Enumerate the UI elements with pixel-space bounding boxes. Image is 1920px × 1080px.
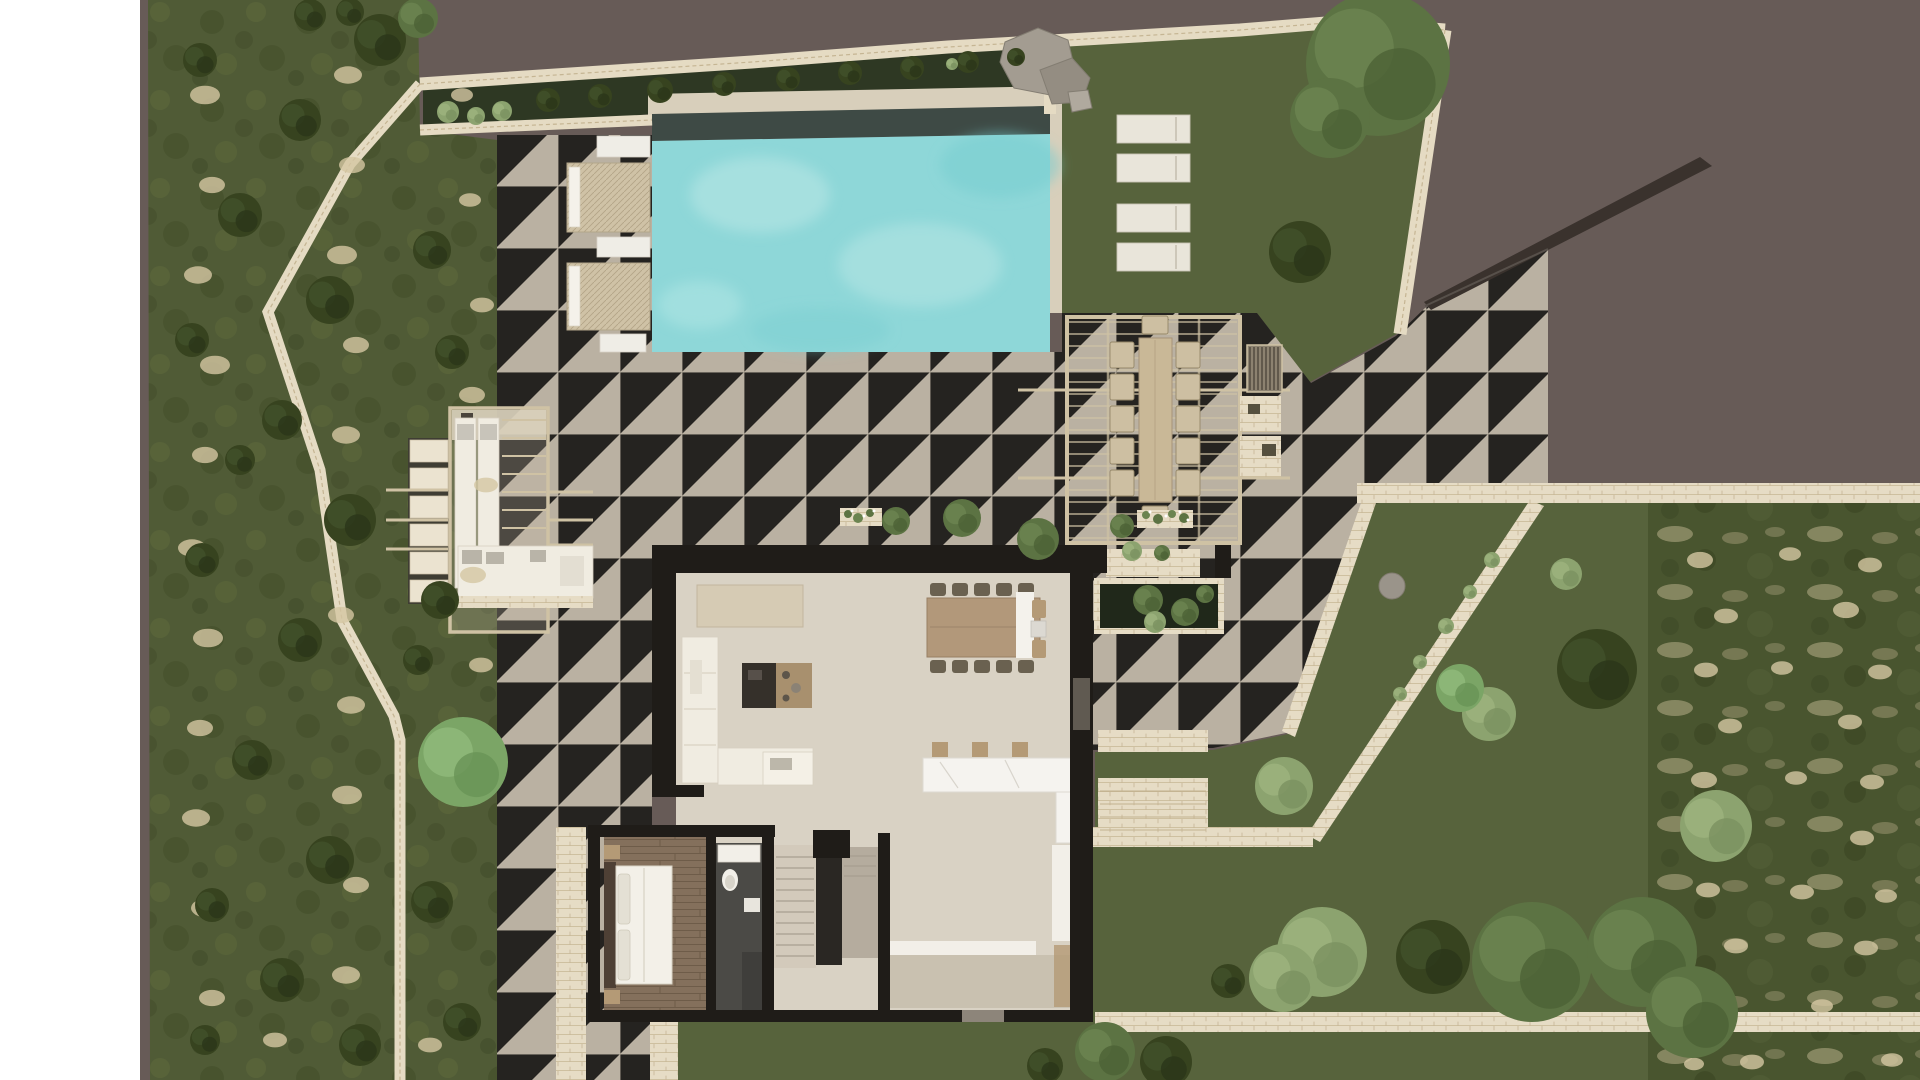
tree-canopy xyxy=(910,65,922,77)
tree-canopy xyxy=(893,518,907,532)
tree-canopy xyxy=(449,348,466,365)
sand-patch xyxy=(1875,889,1897,903)
dark-tree xyxy=(262,400,302,440)
sand-patch xyxy=(1691,772,1717,788)
mid-tree xyxy=(1110,514,1134,538)
tree-canopy xyxy=(296,635,318,657)
bar-stool xyxy=(932,742,948,757)
pergola-planter xyxy=(1137,510,1193,528)
sage-tree xyxy=(1122,541,1142,561)
dark-tree xyxy=(647,77,673,103)
tree-canopy xyxy=(1294,245,1325,276)
tree-canopy xyxy=(428,246,447,265)
sand-patch xyxy=(184,266,212,283)
tree-canopy xyxy=(296,115,317,136)
tree-canopy xyxy=(500,109,510,119)
sand-patch xyxy=(1785,771,1807,785)
mid-tree xyxy=(1133,585,1163,615)
dark-tree xyxy=(776,67,800,91)
tree-canopy xyxy=(1034,534,1055,555)
sun-mat xyxy=(597,237,650,257)
tree-canopy xyxy=(1276,971,1310,1005)
sand-patch xyxy=(187,720,213,736)
outdoor-kitchen xyxy=(1240,345,1282,477)
tree-canopy xyxy=(1469,590,1476,597)
site-plan xyxy=(0,0,1920,1080)
sand-patch xyxy=(1811,999,1833,1013)
kitchen-island xyxy=(923,758,1073,792)
dark-tree xyxy=(1557,629,1637,709)
mid-tree xyxy=(1075,1022,1135,1080)
sand-patch xyxy=(1860,775,1884,790)
sand-patch xyxy=(459,387,485,403)
sand-patch xyxy=(1718,719,1742,734)
tree-canopy xyxy=(598,93,610,105)
sage-tree xyxy=(1413,655,1427,669)
tree-canopy xyxy=(202,1037,217,1052)
dark-tree xyxy=(339,1024,381,1066)
breakfast-nook xyxy=(1016,592,1046,658)
dark-tree xyxy=(218,193,262,237)
tree-canopy xyxy=(1709,818,1745,854)
sand-patch xyxy=(451,88,473,102)
nightstand xyxy=(604,845,620,859)
tree-canopy xyxy=(375,34,401,60)
dark-tree xyxy=(712,72,736,96)
south-wall-stub xyxy=(650,1016,678,1080)
tree-canopy xyxy=(1520,949,1580,1009)
tree-canopy xyxy=(237,457,252,472)
dark-tree xyxy=(1269,221,1331,283)
tree-canopy xyxy=(1490,558,1498,566)
dark-tree xyxy=(411,881,453,923)
tree-canopy xyxy=(951,63,957,69)
dark-tree xyxy=(957,51,979,73)
sand-patch xyxy=(193,629,223,648)
tree-canopy xyxy=(415,657,430,672)
living-room-furniture xyxy=(682,585,813,785)
dark-tree xyxy=(900,56,924,80)
staircase xyxy=(774,845,878,968)
tree-canopy xyxy=(428,897,449,918)
dark-tree xyxy=(225,445,255,475)
dark-tree xyxy=(260,958,304,1002)
tree-canopy xyxy=(1399,692,1406,699)
tree-canopy xyxy=(278,416,298,436)
nightstand xyxy=(604,990,620,1004)
sage-tree xyxy=(437,101,459,123)
tree-canopy xyxy=(278,975,300,997)
sand-patch xyxy=(1779,547,1801,561)
sage-tree xyxy=(1393,687,1407,701)
tree-canopy xyxy=(786,76,798,88)
sideboard xyxy=(697,585,803,627)
sand-patch xyxy=(1858,558,1882,573)
sand-patch xyxy=(332,966,360,983)
window-opening xyxy=(1073,678,1090,730)
mid-tree xyxy=(1472,902,1592,1022)
entry-door xyxy=(962,1010,1004,1022)
tree-canopy xyxy=(1130,549,1140,559)
mid-tree xyxy=(882,507,910,535)
shower-floor xyxy=(742,952,762,1010)
mid-tree xyxy=(1646,966,1738,1058)
shower-tray xyxy=(744,898,760,912)
tree-canopy xyxy=(1364,48,1436,120)
dark-tree xyxy=(1396,920,1470,994)
tree-canopy xyxy=(657,87,670,100)
tree-canopy xyxy=(345,514,371,540)
dark-tree xyxy=(838,61,862,85)
dark-tree xyxy=(294,0,326,31)
mid-tree xyxy=(943,499,981,537)
sand-patch xyxy=(1694,663,1718,678)
sand-patch xyxy=(1868,665,1892,680)
dark-tree xyxy=(413,231,451,269)
sage-tree xyxy=(1438,618,1454,634)
tree-canopy xyxy=(325,295,349,319)
tree-canopy xyxy=(722,81,734,93)
tree-canopy xyxy=(1589,660,1629,700)
garden-wall-east xyxy=(1357,483,1920,503)
tree-canopy xyxy=(546,97,558,109)
sand-patch xyxy=(337,696,365,713)
sand-patch xyxy=(343,877,369,893)
tree-canopy xyxy=(966,60,977,71)
tree-canopy xyxy=(1444,624,1452,632)
sofa xyxy=(682,637,718,783)
sand-patch xyxy=(1854,941,1878,956)
tree-canopy xyxy=(236,210,258,232)
sand-patch xyxy=(182,809,210,826)
dark-tree xyxy=(443,1003,481,1041)
tree-canopy xyxy=(1014,55,1023,64)
dark-tree xyxy=(185,543,219,577)
tree-canopy xyxy=(1426,949,1463,986)
light-tree xyxy=(418,717,508,807)
mid-tree xyxy=(1196,585,1214,603)
dark-tree xyxy=(403,645,433,675)
dark-tree xyxy=(195,888,229,922)
site-plan-canvas xyxy=(0,0,1920,1080)
tree-canopy xyxy=(1563,570,1579,586)
sand-patch xyxy=(190,86,220,105)
tree-canopy xyxy=(474,114,483,123)
sage-tree xyxy=(1484,552,1500,568)
sun-mat xyxy=(600,334,646,352)
terrace-edge-wall xyxy=(1098,730,1208,752)
tree-canopy xyxy=(1484,708,1511,735)
sand-patch xyxy=(1724,939,1748,954)
dark-tree xyxy=(354,14,406,66)
sage-tree xyxy=(492,101,512,121)
dark-tree xyxy=(306,276,354,324)
tree-canopy xyxy=(1099,1045,1129,1075)
light-tree xyxy=(1436,664,1484,712)
sand-patch xyxy=(1696,883,1720,898)
sand-patch xyxy=(1881,1053,1903,1067)
tree-canopy xyxy=(1455,683,1479,707)
sand-patch xyxy=(474,478,498,493)
sand-patch xyxy=(327,246,357,265)
bedroom-furniture xyxy=(604,845,672,1004)
sand-patch xyxy=(343,337,369,353)
sand-patch xyxy=(332,426,360,443)
sand-patch xyxy=(1684,1058,1704,1070)
hall-wardrobe xyxy=(1052,845,1070,941)
bar-stool xyxy=(1012,742,1028,757)
sage-tree xyxy=(1249,944,1317,1012)
swimming-pool xyxy=(648,86,1062,352)
sage-tree xyxy=(1255,757,1313,815)
page-margin xyxy=(0,0,140,1080)
sand-patch xyxy=(200,356,230,375)
sand-patch xyxy=(469,658,493,673)
tree-canopy xyxy=(1313,942,1358,987)
sand-patch xyxy=(459,193,481,207)
sand-patch xyxy=(1687,552,1713,568)
tree-canopy xyxy=(446,110,457,121)
sand-patch xyxy=(339,157,365,173)
bbq-counter xyxy=(1240,436,1281,477)
tree-canopy xyxy=(458,1018,477,1037)
sand-patch xyxy=(1714,609,1738,624)
tree-canopy xyxy=(1041,1062,1059,1080)
dark-tree xyxy=(1211,964,1245,998)
sand-patch xyxy=(1771,661,1793,675)
sand-patch xyxy=(332,786,362,805)
dark-tree xyxy=(588,84,612,108)
dark-tree xyxy=(306,836,354,884)
tree-canopy xyxy=(307,11,323,27)
dark-tree xyxy=(1007,48,1025,66)
dark-tree xyxy=(279,99,321,141)
mid-tree xyxy=(1171,598,1199,626)
bbq-counter xyxy=(1240,396,1281,432)
dark-tree xyxy=(435,335,469,369)
tree-canopy xyxy=(1153,620,1164,631)
dark-tree xyxy=(324,494,376,546)
dark-tree xyxy=(175,323,209,357)
sun-mat xyxy=(597,136,650,157)
sage-tree xyxy=(467,107,485,125)
tree-canopy xyxy=(1683,1002,1729,1048)
sand-patch xyxy=(1838,715,1862,730)
tree-canopy xyxy=(414,14,434,34)
mid-tree xyxy=(1017,518,1059,560)
sand-patch xyxy=(328,607,354,623)
sage-tree xyxy=(946,58,958,70)
mid-tree xyxy=(1290,78,1370,158)
sand-patch xyxy=(199,177,225,193)
bar-stool xyxy=(972,742,988,757)
tree-canopy xyxy=(248,756,268,776)
tree-canopy xyxy=(356,1040,377,1061)
sage-tree xyxy=(1144,611,1166,633)
tree-canopy xyxy=(1278,780,1307,809)
tree-canopy xyxy=(1182,609,1196,623)
sand-patch xyxy=(1740,1055,1764,1070)
garden-steps xyxy=(1098,778,1208,844)
tree-canopy xyxy=(1322,109,1362,149)
sand-patch xyxy=(1790,885,1814,900)
coffee-table xyxy=(742,663,812,708)
tree-canopy xyxy=(1419,660,1426,667)
sage-tree xyxy=(1550,558,1582,590)
sand-patch xyxy=(192,447,218,463)
tree-canopy xyxy=(197,56,214,73)
tree-canopy xyxy=(454,752,499,797)
sand-patch xyxy=(199,990,225,1006)
tree-canopy xyxy=(1145,597,1160,612)
sage-tree xyxy=(1680,790,1752,862)
raised-planter xyxy=(1106,549,1200,577)
tree-canopy xyxy=(1160,551,1168,559)
tree-canopy xyxy=(958,514,977,533)
hall-counter xyxy=(890,941,1036,955)
tree-canopy xyxy=(848,70,860,82)
sand-patch xyxy=(334,66,362,83)
bed-headboard xyxy=(604,862,616,988)
tree-canopy xyxy=(325,855,349,879)
sand-patch xyxy=(470,298,494,313)
mid-tree xyxy=(1154,545,1170,561)
sand-patch xyxy=(1833,602,1859,618)
dark-tree xyxy=(536,88,560,112)
sage-tree xyxy=(1463,585,1477,599)
tree-canopy xyxy=(347,9,361,23)
vanity-sink xyxy=(718,845,760,862)
tree-canopy xyxy=(1120,523,1132,535)
dark-tree xyxy=(190,1025,220,1055)
southwest-wall xyxy=(556,827,586,1080)
sand-patch xyxy=(263,1033,287,1048)
dark-tree xyxy=(278,618,322,662)
tree-canopy xyxy=(1225,977,1242,994)
tree-canopy xyxy=(189,336,206,353)
dark-tree xyxy=(183,43,217,77)
slatted-bench xyxy=(1247,345,1282,392)
sand-patch xyxy=(460,567,486,583)
sand-patch xyxy=(418,1038,442,1053)
sand-patch xyxy=(1850,831,1874,846)
tree-canopy xyxy=(199,556,216,573)
entry-floor xyxy=(890,955,1070,1008)
tree-canopy xyxy=(436,596,455,615)
dark-tree xyxy=(232,740,272,780)
tree-canopy xyxy=(1203,592,1212,601)
dark-tree xyxy=(421,581,459,619)
tree-canopy xyxy=(209,901,226,918)
